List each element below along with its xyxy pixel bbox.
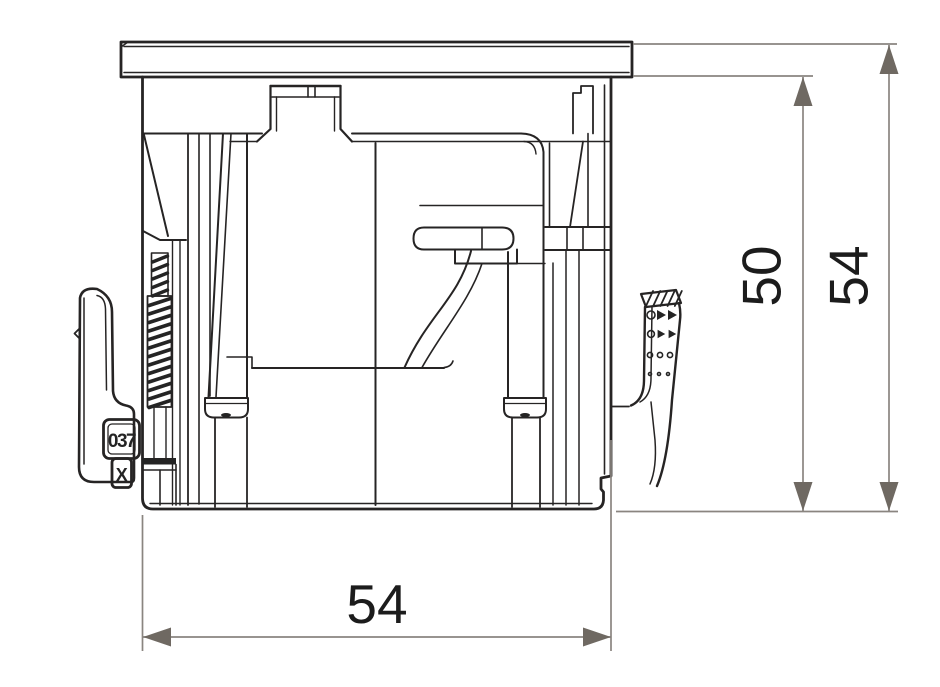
internal-ledges xyxy=(143,134,612,399)
marking-stem-text: X xyxy=(116,465,128,485)
top-flange-plate xyxy=(121,42,632,77)
dimension-annotations: 50 54 54 xyxy=(143,44,899,651)
arrow-left-54 xyxy=(143,628,171,647)
dim-label-54-vertical: 54 xyxy=(818,245,880,306)
right-clip-arm xyxy=(631,290,681,486)
left-leg xyxy=(199,134,252,508)
marking-head-text: 037 xyxy=(108,431,136,452)
generated-details xyxy=(149,256,682,408)
bottom-left-feet xyxy=(142,458,176,505)
center-tab xyxy=(257,86,352,142)
latch-block xyxy=(405,206,544,368)
dim-label-50: 50 xyxy=(731,245,793,306)
arrow-down-50 xyxy=(794,482,813,511)
arrow-down-54 xyxy=(880,482,899,511)
arrow-right-54 xyxy=(583,628,611,647)
dim-label-54-horizontal: 54 xyxy=(346,573,407,635)
arrow-up-50 xyxy=(794,77,813,106)
component-cross-section: 037 X xyxy=(75,42,682,509)
arrow-up-54 xyxy=(880,45,899,74)
right-leg xyxy=(504,252,546,507)
technical-drawing-canvas: 037 X xyxy=(0,0,940,687)
right-wall xyxy=(545,86,629,505)
